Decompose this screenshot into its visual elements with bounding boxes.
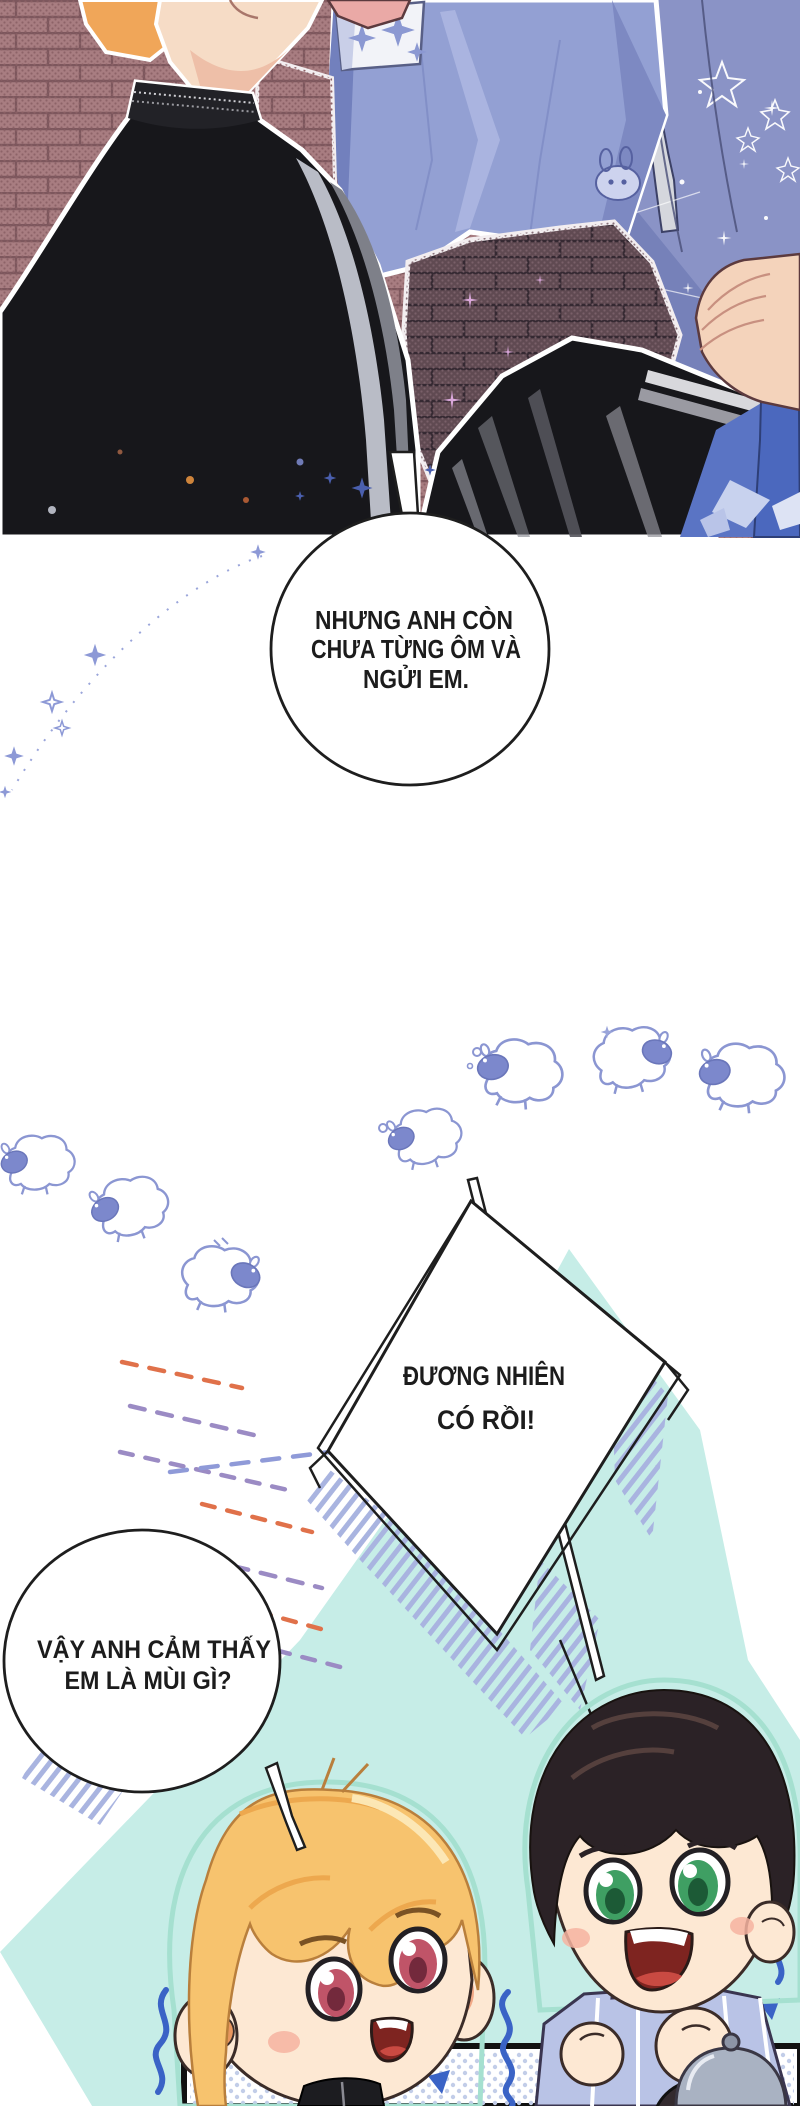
svg-text:NHƯNG ANH CÒN: NHƯNG ANH CÒN — [315, 605, 513, 635]
svg-text:VẬY ANH CẢM THẤY: VẬY ANH CẢM THẤY — [37, 1634, 271, 1664]
svg-text:NGỬI EM.: NGỬI EM. — [363, 663, 469, 694]
svg-text:EM LÀ MÙI GÌ?: EM LÀ MÙI GÌ? — [65, 1665, 232, 1695]
svg-text:CÓ RỒI!: CÓ RỒI! — [437, 1404, 535, 1435]
svg-text:CHƯA TỪNG ÔM VÀ: CHƯA TỪNG ÔM VÀ — [311, 634, 521, 664]
svg-text:ĐƯƠNG NHIÊN: ĐƯƠNG NHIÊN — [403, 1360, 565, 1391]
